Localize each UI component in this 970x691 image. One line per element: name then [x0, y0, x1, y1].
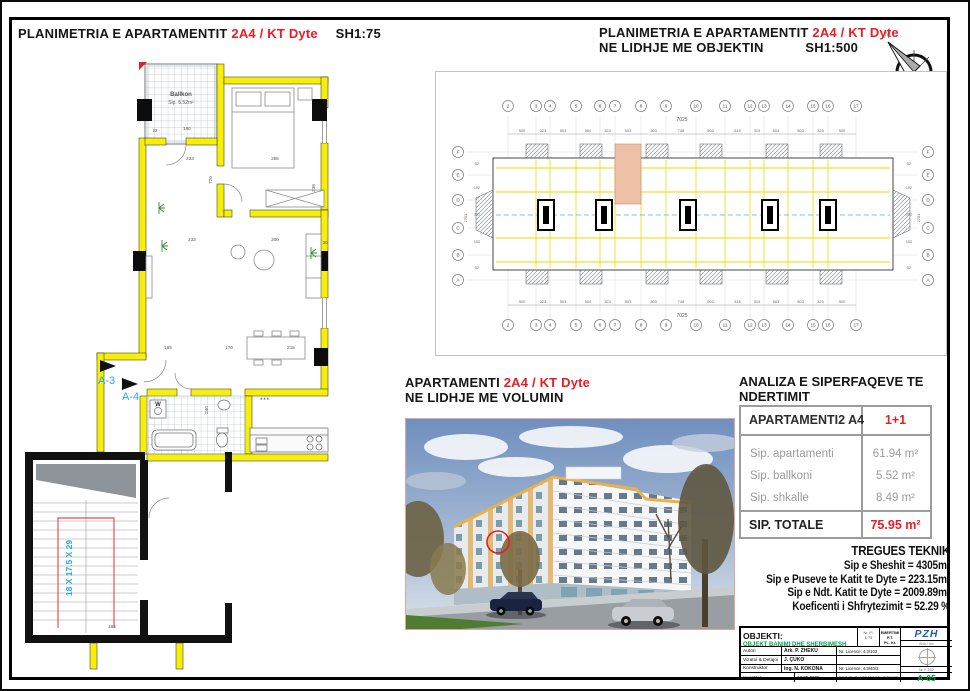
svg-text:515: 515 — [734, 299, 741, 304]
volume-title: APARTAMENTI 2A4 / KT Dyte NE LIDHJE ME V… — [405, 375, 590, 405]
svg-text:10: 10 — [693, 104, 699, 109]
drafter-label: Vizatoi & Detajoi — [741, 655, 781, 664]
detail-apartment-plan: Ballkon Sip. 5.52m² — [16, 48, 382, 678]
volume-title-unit: 2A4 / KT Dyte — [504, 375, 590, 390]
tregues-line: Sip e Ndt. Katit te Dyte = 2009.89m² — [644, 587, 950, 601]
svg-text:503: 503 — [560, 128, 567, 133]
technical-indicators: TREGUES TEKNIK Sip e Sheshit = 4305m² Si… — [644, 543, 950, 614]
analysis-table: APARTAMENTI2 A4 1+1 Sip. apartamenti 61.… — [739, 405, 932, 539]
svg-text:152: 152 — [474, 240, 480, 244]
sheet-number: A-05 — [901, 672, 952, 682]
engineer-label: Konstruktor — [741, 664, 781, 672]
analysis-header-row: APARTAMENTI2 A4 1+1 — [741, 407, 930, 436]
svg-text:17: 17 — [853, 323, 859, 328]
tregues-title: TREGUES TEKNIK — [644, 543, 950, 558]
svg-text:52: 52 — [475, 162, 479, 166]
svg-text:500: 500 — [519, 128, 526, 133]
svg-text:152: 152 — [906, 186, 912, 190]
svg-text:170: 170 — [225, 345, 233, 350]
svg-text:12: 12 — [747, 323, 753, 328]
svg-text:503: 503 — [625, 299, 632, 304]
total-dimension-bottom: 7025 — [676, 313, 687, 319]
volume-title-line2: NE LIDHJE ME VOLUMIN — [405, 390, 590, 405]
balcony-area-label: Sip. 5.52m² — [168, 100, 194, 106]
svg-text:22: 22 — [152, 128, 158, 133]
analysis-row: Sip. apartamenti 61.94 m² — [741, 445, 930, 467]
svg-text:301: 301 — [474, 212, 480, 216]
svg-text:3: 3 — [535, 323, 538, 328]
svg-text:165: 165 — [164, 345, 172, 350]
side-total-left: 2701 — [463, 213, 468, 223]
penthouse — [566, 467, 621, 479]
analysis-title-line1: ANALIZA E SIPERFAQEVE TE — [739, 374, 923, 389]
svg-text:52: 52 — [475, 266, 479, 270]
volume-title-prefix: APARTAMENTI — [405, 375, 500, 390]
analysis-row-value: 5.52 m² — [861, 470, 930, 482]
svg-text:323: 323 — [604, 128, 611, 133]
project-note: PROJEKTI I ZBATIMIT - TIRANE — [836, 672, 900, 682]
svg-text:500: 500 — [839, 128, 846, 133]
svg-text:11: 11 — [723, 323, 728, 328]
svg-text:9: 9 — [665, 323, 668, 328]
svg-text:500: 500 — [839, 299, 846, 304]
svg-text:8: 8 — [640, 104, 643, 109]
svg-text:515: 515 — [734, 128, 741, 133]
tregues-line: Koeficenti i Shfrytezimit = 52.29 % — [644, 601, 950, 615]
overview-building-plan: 7025 7025 2701 2701 22334455667788991010… — [436, 72, 946, 355]
svg-text:323: 323 — [817, 128, 824, 133]
detail-title-scale: SH1:75 — [336, 26, 381, 41]
svg-text:F: F — [927, 150, 930, 155]
svg-text:2: 2 — [507, 323, 510, 328]
svg-text:4: 4 — [549, 323, 552, 328]
analysis-row-label: Sip. apartamenti — [750, 448, 834, 460]
svg-text:E: E — [456, 173, 459, 178]
detail-title-unit: 2A4 / KT Dyte — [231, 26, 317, 41]
svg-text:165: 165 — [108, 624, 116, 629]
svg-text:288: 288 — [271, 156, 279, 161]
engineer-value: Ing. N. KOKONA — [781, 664, 836, 672]
fixture-note: *** — [260, 398, 270, 404]
author-value: Ark. P. ZHEKU — [781, 646, 836, 655]
svg-text:52: 52 — [907, 266, 911, 270]
svg-text:30: 30 — [322, 240, 328, 245]
svg-text:5: 5 — [575, 104, 578, 109]
svg-text:152: 152 — [906, 240, 912, 244]
overview-title-prefix: PLANIMETRIA E APARTAMENTIT — [599, 25, 809, 40]
svg-text:500: 500 — [585, 128, 592, 133]
svg-text:323: 323 — [817, 299, 824, 304]
svg-text:323: 323 — [604, 299, 611, 304]
author-label: Autori — [741, 646, 781, 655]
svg-text:13: 13 — [761, 104, 767, 109]
svg-text:7: 7 — [614, 104, 617, 109]
logo-column: PZH Arch / Inc Nr. F. 2/02 A-05 — [900, 628, 952, 682]
svg-text:152: 152 — [474, 186, 480, 190]
svg-text:7: 7 — [614, 323, 617, 328]
sheet-scale-cell: Nr. Fl. 1:75 — [857, 628, 879, 646]
svg-text:B: B — [456, 253, 459, 258]
company-stamp-icon — [919, 649, 935, 665]
emertimi-cell: EMERTIMI P.T. PL. Kt. DYTE — [879, 628, 900, 646]
svg-text:303: 303 — [650, 299, 657, 304]
analysis-row-value: 61.94 m² — [861, 448, 930, 460]
analysis-total-row: SIP. TOTALE 75.95 m² — [741, 510, 930, 537]
stair-flight-upper — [36, 464, 136, 498]
analysis-row: Sip. ballkoni 5.52 m² — [741, 467, 930, 489]
total-dimension-top: 7025 — [676, 117, 687, 123]
tregues-line: Sip e Puseve te Katit te Dyte = 223.15m² — [644, 574, 950, 588]
svg-text:240: 240 — [204, 406, 209, 414]
drafter-licence — [836, 655, 900, 664]
overview-plan-title: PLANIMETRIA E APARTAMENTIT 2A4 / KT Dyte… — [599, 25, 899, 55]
svg-text:16: 16 — [825, 104, 831, 109]
svg-text:300: 300 — [271, 237, 279, 242]
pzh-logo: PZH — [901, 628, 952, 640]
svg-text:10: 10 — [693, 323, 699, 328]
svg-text:6: 6 — [599, 323, 602, 328]
drafter-value: J. ÇUKO — [781, 655, 836, 664]
sheet-cell-line2: 1:75 — [858, 636, 879, 641]
objekti-cell: OBJEKTI: OBJEKT BANIMI DHE SHERBIMESH — [741, 628, 857, 646]
washer-label: W — [155, 402, 161, 408]
svg-text:3: 3 — [535, 104, 538, 109]
date-value: 17.09.2009 — [794, 672, 836, 682]
objekti-label: OBJEKTI: — [743, 631, 783, 641]
compass-north-label: N — [884, 30, 891, 40]
svg-text:4: 4 — [549, 104, 552, 109]
kitchen-counter — [250, 428, 328, 452]
svg-text:503: 503 — [560, 299, 567, 304]
stair-dimensions-label: 18 X 17.5 X 29 — [64, 540, 74, 597]
author-licence: Nr. Licence: 4.3/103 — [836, 646, 900, 655]
drawing-sheet: PLANIMETRIA E APARTAMENTIT 2A4 / KT Dyte… — [0, 0, 970, 691]
analysis-row-value: 8.49 m² — [861, 492, 930, 504]
svg-text:15: 15 — [810, 323, 816, 328]
svg-text:233: 233 — [188, 237, 196, 242]
svg-text:215: 215 — [287, 345, 295, 350]
svg-text:503: 503 — [797, 299, 804, 304]
detail-plan-title: PLANIMETRIA E APARTAMENTIT 2A4 / KT Dyte… — [18, 26, 381, 41]
highlighted-apartment-2a4 — [615, 144, 641, 204]
svg-text:503: 503 — [773, 128, 780, 133]
svg-text:11: 11 — [723, 104, 728, 109]
analysis-row: Sip. shkalle 8.49 m² — [741, 489, 930, 511]
svg-text:13: 13 — [761, 323, 767, 328]
svg-text:190: 190 — [183, 126, 191, 131]
svg-text:14: 14 — [785, 104, 791, 109]
analysis-total-label: SIP. TOTALE — [749, 518, 823, 532]
overview-plan-box: 7025 7025 2701 2701 22334455667788991010… — [435, 71, 947, 356]
svg-text:17: 17 — [853, 104, 859, 109]
svg-text:503: 503 — [625, 128, 632, 133]
tregues-line: Sip e Sheshit = 4305m² — [644, 560, 950, 574]
engineer-licence: Nr. Licence: 4.3/40/3 — [836, 664, 900, 672]
section-mark-a4-icon — [122, 378, 138, 390]
analysis-title: ANALIZA E SIPERFAQEVE TE NDERTIMIT — [739, 374, 923, 404]
analysis-row-label: Sip. ballkoni — [750, 470, 812, 482]
stamp-area — [901, 646, 952, 666]
svg-text:12: 12 — [747, 104, 753, 109]
overview-title-line2: NE LIDHJE ME OBJEKTIN — [599, 40, 764, 55]
analysis-apartment-name: APARTAMENTI2 A4 — [749, 413, 864, 427]
section-mark-a4: A-4 — [122, 391, 139, 403]
svg-text:5: 5 — [575, 323, 578, 328]
overview-title-scale: SH1:500 — [805, 40, 858, 55]
svg-text:323: 323 — [540, 128, 547, 133]
svg-text:8: 8 — [640, 323, 643, 328]
svg-text:503: 503 — [773, 299, 780, 304]
svg-text:500: 500 — [585, 299, 592, 304]
svg-text:503: 503 — [707, 128, 714, 133]
svg-text:315: 315 — [754, 128, 761, 133]
svg-text:16: 16 — [825, 323, 831, 328]
investor-label: Investitor — [741, 672, 794, 682]
svg-text:720: 720 — [208, 176, 213, 184]
section-mark-a3-icon — [100, 360, 116, 372]
analysis-title-line2: NDERTIMIT — [739, 389, 923, 404]
svg-text:315: 315 — [754, 299, 761, 304]
svg-text:6: 6 — [599, 104, 602, 109]
svg-text:303: 303 — [650, 128, 657, 133]
svg-text:E: E — [926, 173, 929, 178]
stair-treads — [33, 500, 138, 633]
analysis-apartment-type: 1+1 — [861, 413, 930, 427]
section-mark-a3: A-3 — [98, 375, 115, 387]
emertimi-line1: EMERTIMI P.T. — [880, 631, 900, 641]
svg-text:503: 503 — [797, 128, 804, 133]
svg-text:238: 238 — [311, 184, 316, 192]
svg-text:748: 748 — [678, 299, 685, 304]
analysis-total-value: 75.95 m² — [861, 518, 930, 532]
svg-text:233: 233 — [186, 156, 194, 161]
svg-text:B: B — [926, 253, 929, 258]
svg-text:14: 14 — [785, 323, 791, 328]
title-block: OBJEKTI: OBJEKT BANIMI DHE SHERBIMESH Nr… — [739, 626, 950, 680]
balcony-label: Ballkon — [170, 92, 192, 98]
svg-text:503: 503 — [707, 299, 714, 304]
svg-text:F: F — [457, 150, 460, 155]
svg-text:9: 9 — [665, 104, 668, 109]
svg-text:748: 748 — [678, 128, 685, 133]
svg-text:301: 301 — [906, 212, 912, 216]
svg-text:15: 15 — [810, 104, 816, 109]
detail-title-prefix: PLANIMETRIA E APARTAMENTIT — [18, 26, 228, 41]
svg-text:500: 500 — [519, 299, 526, 304]
svg-text:2: 2 — [507, 104, 510, 109]
svg-text:323: 323 — [540, 299, 547, 304]
analysis-row-label: Sip. shkalle — [750, 492, 809, 504]
svg-text:52: 52 — [907, 162, 911, 166]
side-total-right: 2701 — [916, 213, 921, 223]
